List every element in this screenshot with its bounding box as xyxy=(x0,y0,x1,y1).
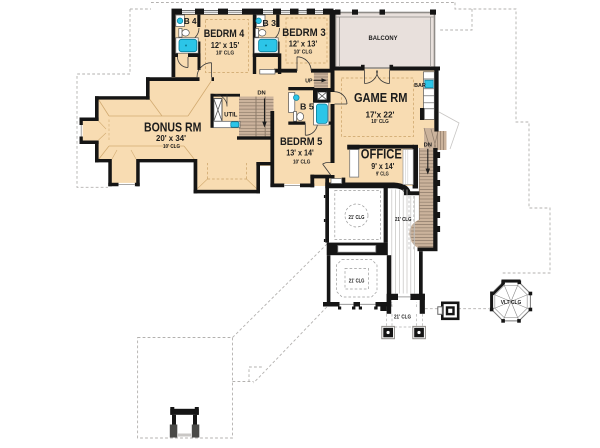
svg-text:21' CLG: 21' CLG xyxy=(349,278,365,284)
svg-text:BAR: BAR xyxy=(414,83,426,89)
svg-text:12' x 13': 12' x 13' xyxy=(289,39,318,48)
svg-text:B 5: B 5 xyxy=(300,102,314,111)
svg-text:10' CLG: 10' CLG xyxy=(371,119,389,125)
svg-text:10' CLG: 10' CLG xyxy=(163,144,180,150)
svg-text:21' CLG: 21' CLG xyxy=(394,315,411,321)
svg-text:BALCONY: BALCONY xyxy=(369,35,399,42)
svg-text:20' x 34': 20' x 34' xyxy=(156,133,186,143)
svg-text:9' x 14': 9' x 14' xyxy=(371,162,394,171)
svg-text:12' x 15': 12' x 15' xyxy=(211,41,240,50)
svg-text:DN: DN xyxy=(257,91,265,97)
svg-text:UP: UP xyxy=(305,78,313,84)
svg-text:9' CLG: 9' CLG xyxy=(376,171,389,177)
svg-text:13' x 14': 13' x 14' xyxy=(286,148,314,157)
svg-text:BEDRM 4: BEDRM 4 xyxy=(204,28,245,40)
svg-text:10' CLG: 10' CLG xyxy=(294,50,313,56)
svg-text:BEDRM 3: BEDRM 3 xyxy=(282,27,326,39)
svg-text:BEDRM 5: BEDRM 5 xyxy=(280,136,323,148)
svg-text:VLT CLG: VLT CLG xyxy=(501,300,522,306)
svg-text:GAME RM: GAME RM xyxy=(354,90,408,105)
svg-text:DN: DN xyxy=(424,143,432,149)
svg-text:B 4: B 4 xyxy=(184,17,197,26)
svg-text:21' CLG: 21' CLG xyxy=(395,217,412,223)
svg-text:21' CLG: 21' CLG xyxy=(349,215,365,221)
svg-text:B 3: B 3 xyxy=(262,19,276,28)
svg-text:10' CLG: 10' CLG xyxy=(216,50,234,56)
svg-text:OFFICE: OFFICE xyxy=(361,147,402,162)
svg-text:10' CLG: 10' CLG xyxy=(293,160,311,166)
svg-text:UTIL: UTIL xyxy=(224,112,237,119)
